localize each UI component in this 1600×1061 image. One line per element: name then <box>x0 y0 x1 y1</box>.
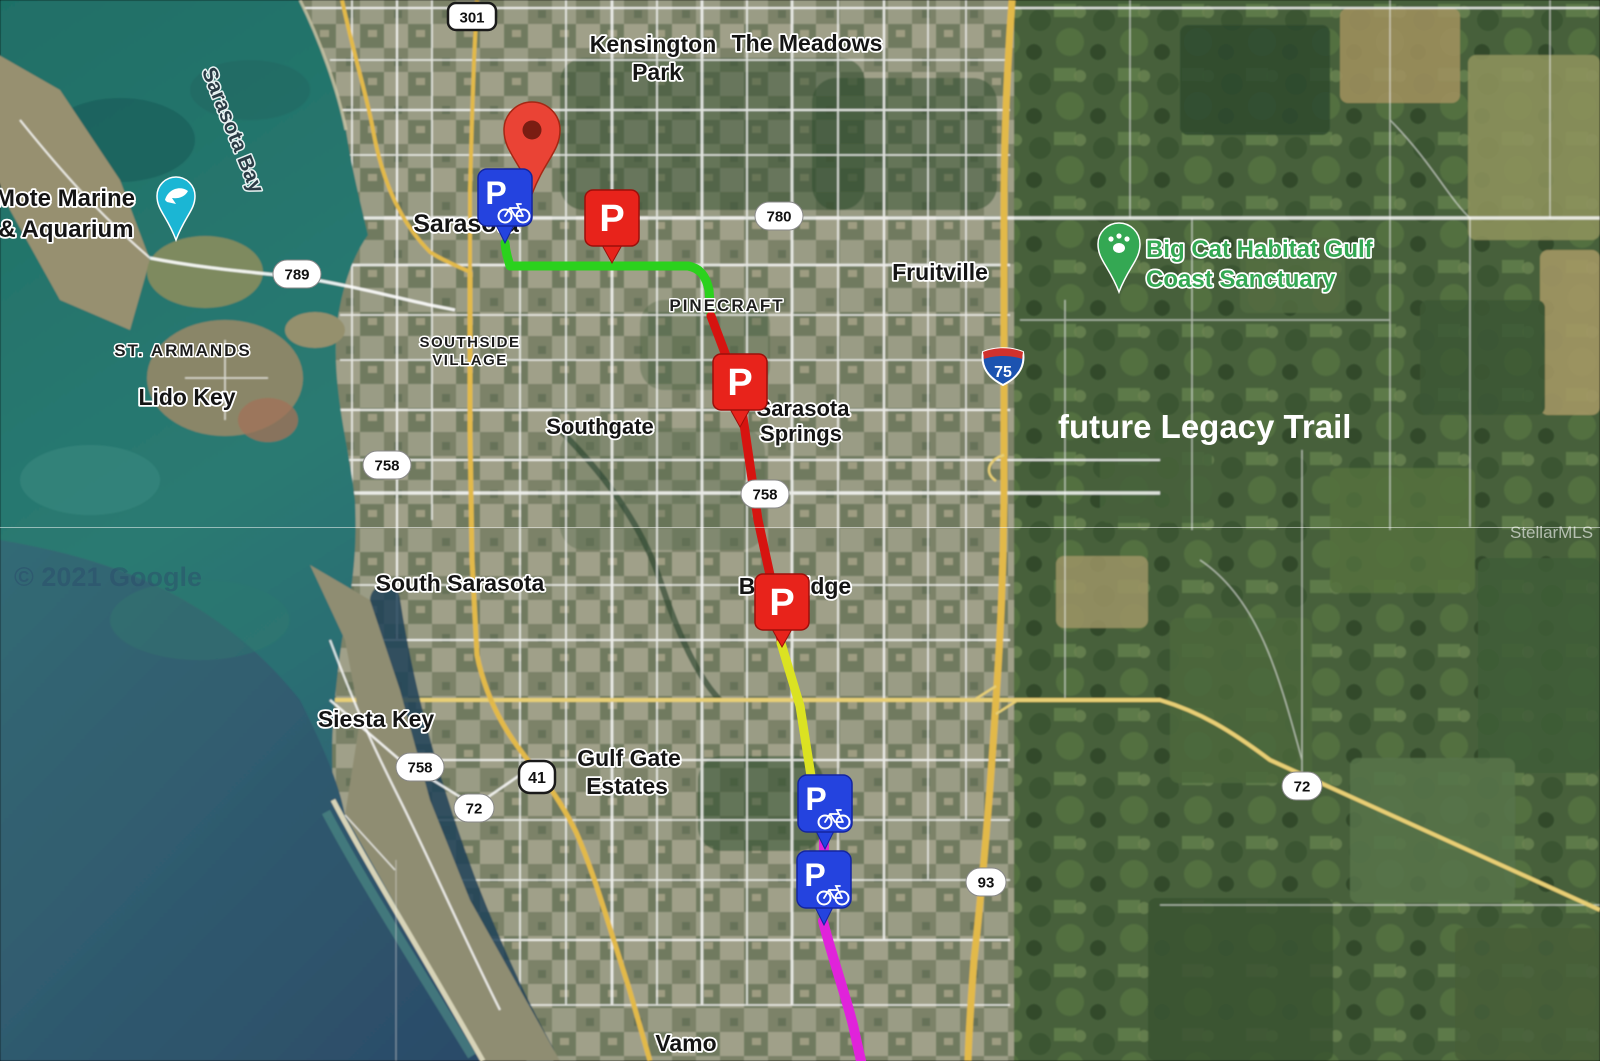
label-lido-key: Lido Key <box>138 384 235 410</box>
svg-text:72: 72 <box>1294 779 1311 796</box>
svg-text:789: 789 <box>284 267 309 284</box>
shield-sr758-west: 758 <box>363 451 411 479</box>
satellite-map[interactable]: 301 780 789 758 758 758 41 72 <box>0 0 1600 1061</box>
label-southgate: Southgate <box>546 414 654 439</box>
label-kensington-park: Park <box>632 59 682 85</box>
svg-text:41: 41 <box>528 770 546 787</box>
shield-sr758-mid: 758 <box>741 480 789 508</box>
label-kensington-park: Kensington <box>590 31 717 57</box>
map-attribution: © 2021 Google <box>14 562 202 592</box>
pin-center-dot <box>523 121 542 140</box>
svg-text:301: 301 <box>459 10 484 27</box>
label-big-cat-habitat: Big Cat Habitat Gulf <box>1146 236 1374 263</box>
label-fruitville: Fruitville <box>892 259 988 285</box>
svg-text:72: 72 <box>466 801 483 818</box>
parking-letter: P <box>805 781 826 817</box>
shield-sr93: 93 <box>966 868 1006 896</box>
svg-text:780: 780 <box>766 209 791 226</box>
parking-letter: P <box>599 198 624 240</box>
trail-annotation: future Legacy Trail <box>1058 408 1351 445</box>
label-sarasota-springs: Sarasota <box>757 396 851 421</box>
label-gulf-gate-estates: Gulf Gate <box>577 745 681 771</box>
label-southside-village: SOUTHSIDE <box>419 334 520 351</box>
label-big-cat-habitat: Coast Sanctuary <box>1146 266 1336 293</box>
shield-sr72-west: 72 <box>454 794 494 822</box>
svg-text:758: 758 <box>407 760 432 777</box>
label-southside-village: VILLAGE <box>432 352 508 369</box>
label-gulf-gate-estates: Estates <box>586 773 668 799</box>
label-south-sarasota: South Sarasota <box>376 570 545 596</box>
shield-sr789: 789 <box>273 260 321 288</box>
map-canvas[interactable]: 301 780 789 758 758 758 41 72 <box>0 0 1600 1061</box>
label-mote-marine: Mote Marine <box>0 185 135 212</box>
label-siesta-key: Siesta Key <box>318 706 435 732</box>
mls-watermark: StellarMLS <box>1510 523 1593 542</box>
parking-letter: P <box>727 362 752 404</box>
i75-number: 75 <box>994 364 1012 381</box>
label-sarasota-springs: Springs <box>760 421 842 446</box>
svg-text:758: 758 <box>752 487 777 504</box>
svg-text:93: 93 <box>978 875 995 892</box>
svg-text:758: 758 <box>374 458 399 475</box>
label-pinecraft: PINECRAFT <box>669 296 784 315</box>
shield-us301: 301 <box>448 3 496 30</box>
label-mote-marine: & Aquarium <box>0 216 134 243</box>
label-vamo: Vamo <box>655 1030 716 1056</box>
parking-letter: P <box>485 175 506 211</box>
shield-sr72-east: 72 <box>1282 772 1322 800</box>
label-st-armands: ST. ARMANDS <box>114 341 252 360</box>
parking-letter: P <box>804 857 825 893</box>
parking-letter: P <box>769 582 794 624</box>
shield-sr758-siesta: 758 <box>396 753 444 781</box>
shield-sr780: 780 <box>755 202 803 230</box>
label-the-meadows: The Meadows <box>732 30 883 56</box>
shield-us41: 41 <box>519 761 555 793</box>
